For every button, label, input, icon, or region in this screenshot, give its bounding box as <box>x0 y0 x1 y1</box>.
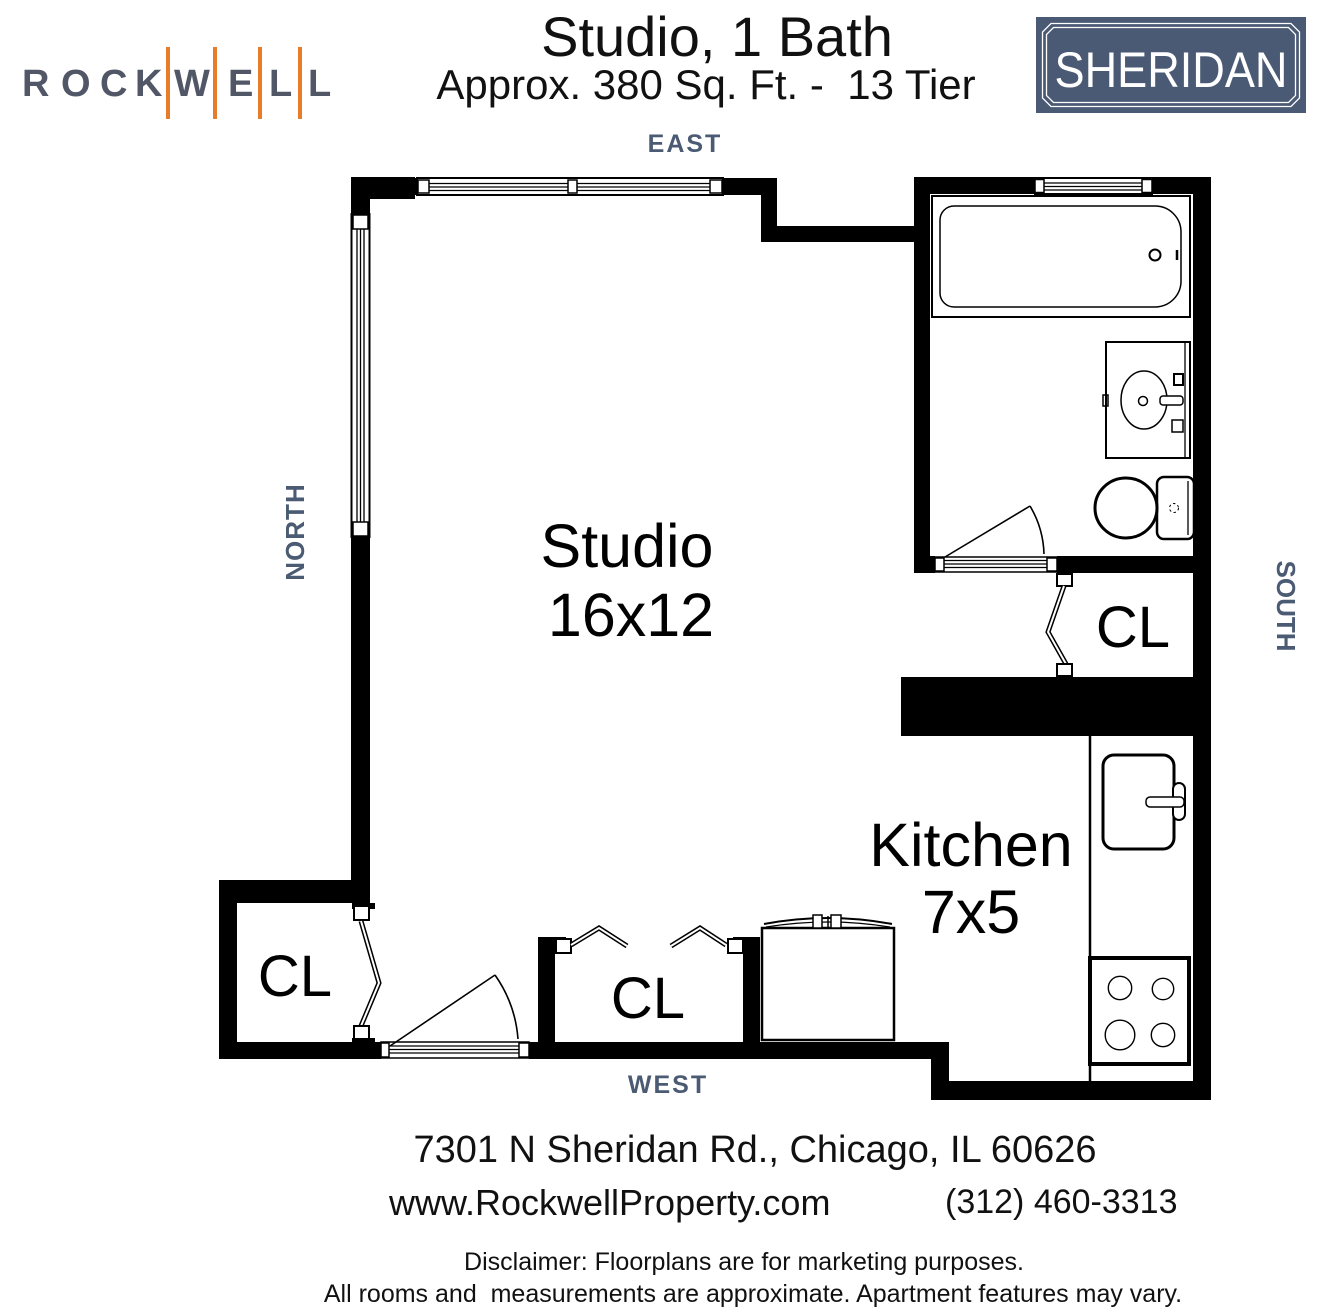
svg-text:16x12: 16x12 <box>548 581 714 649</box>
svg-text:SOUTH: SOUTH <box>1271 561 1301 652</box>
svg-text:CL: CL <box>1096 595 1170 660</box>
svg-text:CL: CL <box>611 966 685 1031</box>
svg-text:WEST: WEST <box>628 1071 708 1099</box>
svg-text:7x5: 7x5 <box>922 878 1020 946</box>
svg-text:Kitchen: Kitchen <box>869 811 1072 879</box>
svg-text:NORTH: NORTH <box>280 483 310 580</box>
svg-text:EAST: EAST <box>648 130 723 158</box>
svg-text:CL: CL <box>258 944 332 1009</box>
svg-text:Studio: Studio <box>541 512 714 580</box>
